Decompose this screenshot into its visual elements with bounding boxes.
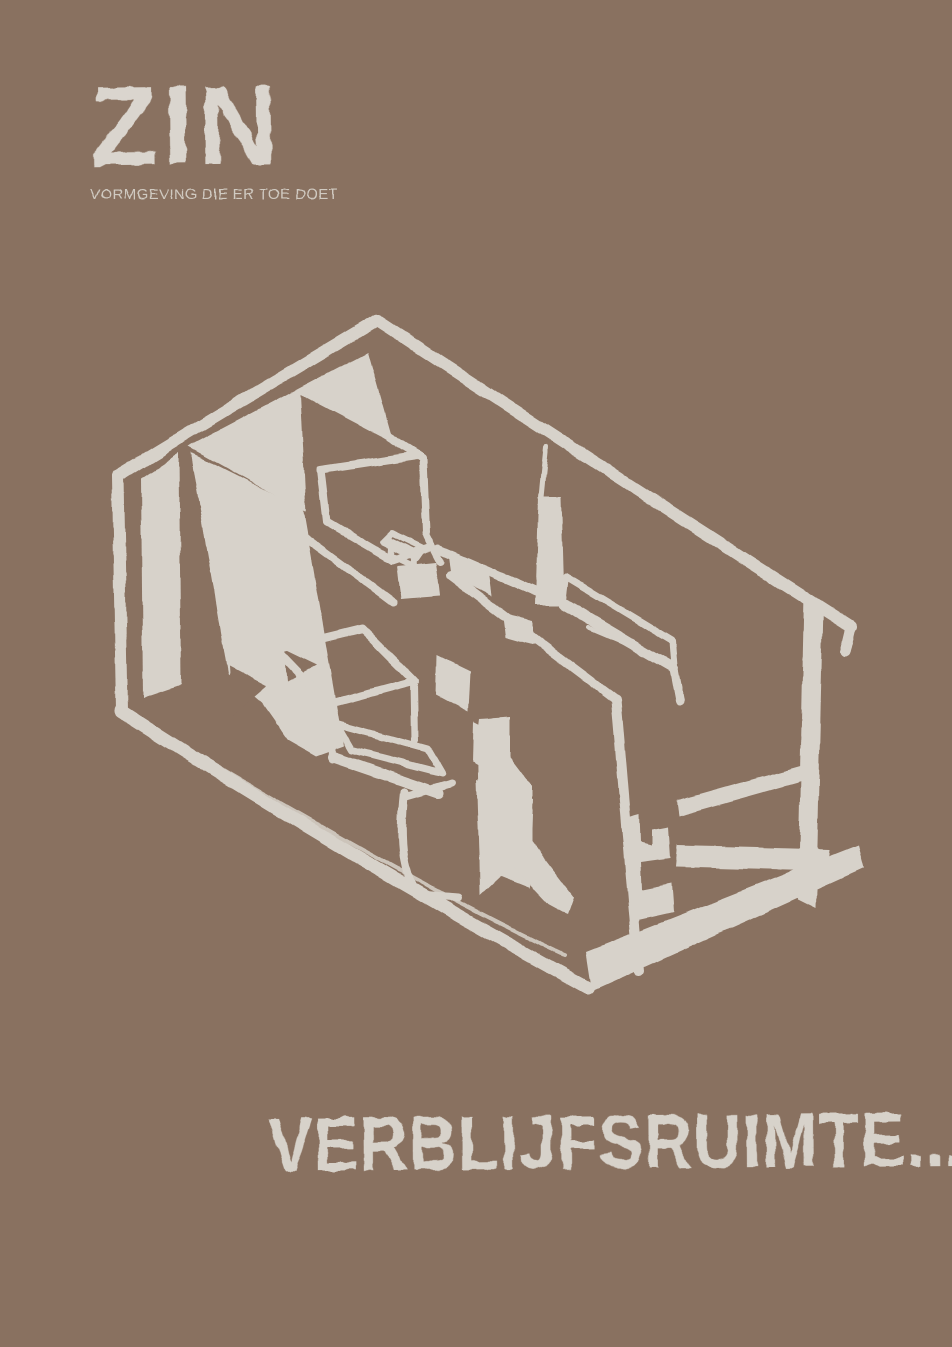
table-leg <box>414 683 415 741</box>
headline: VERBLIJFSRUIMTE... <box>268 1102 952 1184</box>
wall-shelf <box>563 577 674 667</box>
kitchen-block <box>478 717 674 922</box>
door-jamb <box>397 562 440 599</box>
lounge-chair-frame <box>402 783 458 897</box>
left-wall <box>141 453 181 698</box>
chair-seat-fill <box>436 655 470 712</box>
left-wall-panel <box>141 453 181 698</box>
lamp-stem <box>541 447 546 497</box>
frame-rail-upper <box>676 764 810 816</box>
coffee-table <box>333 724 442 793</box>
poster: ZIN VORMGEVING DIE ER TOE DOET <box>0 0 952 1347</box>
door-post <box>536 496 564 605</box>
frame-rail-lower <box>676 845 830 871</box>
table-leg <box>278 652 279 722</box>
wall-bracket <box>626 814 674 922</box>
